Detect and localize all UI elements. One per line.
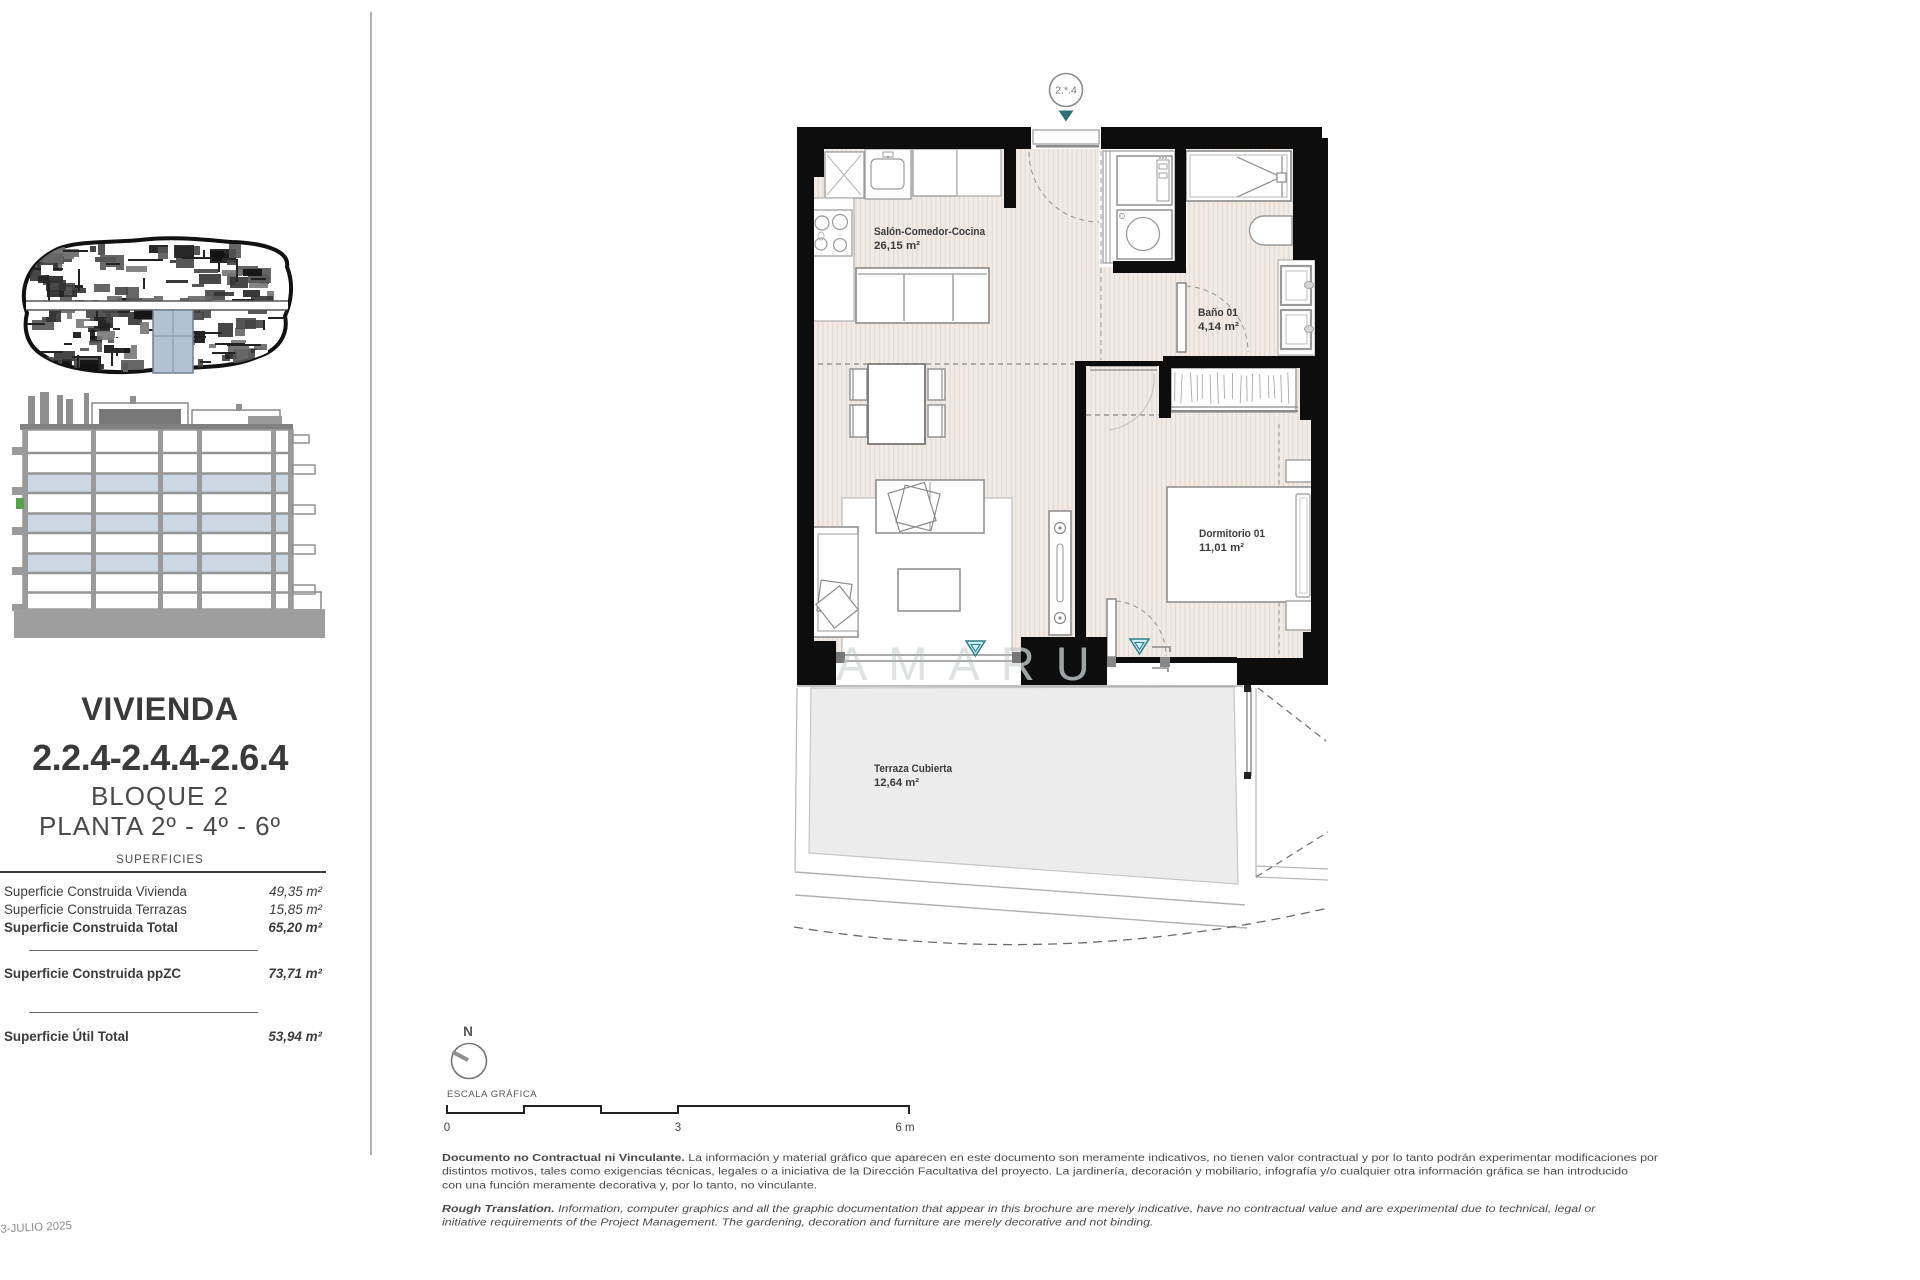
svg-text:ESCALA GRÁFICA: ESCALA GRÁFICA	[447, 1089, 537, 1100]
svg-text:2.*.4: 2.*.4	[1055, 85, 1077, 97]
svg-text:0: 0	[444, 1122, 450, 1134]
svg-text:3: 3	[675, 1122, 681, 1134]
svg-text:26,15 m²: 26,15 m²	[874, 240, 920, 252]
svg-text:Dormitorio 01: Dormitorio 01	[1199, 528, 1265, 540]
svg-text:AMARU: AMARU	[836, 637, 1111, 690]
svg-text:4,14 m²: 4,14 m²	[1198, 321, 1239, 333]
svg-text:12,64 m²: 12,64 m²	[874, 777, 919, 789]
svg-text:6 m: 6 m	[895, 1122, 914, 1134]
svg-text:11,01 m²: 11,01 m²	[1199, 542, 1244, 554]
svg-text:N: N	[463, 1024, 473, 1039]
svg-text:Salón-Comedor-Cocina: Salón-Comedor-Cocina	[874, 226, 986, 238]
svg-text:Terraza Cubierta: Terraza Cubierta	[874, 763, 953, 775]
svg-text:Baño 01: Baño 01	[1198, 307, 1238, 319]
